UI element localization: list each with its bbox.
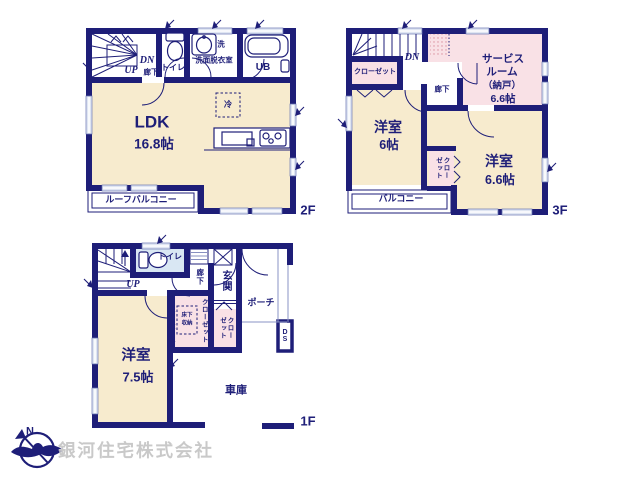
toilet-icon	[166, 33, 184, 41]
service-room-label-2: ルーム	[486, 67, 517, 78]
kitchen-counter	[204, 128, 290, 150]
compass-icon	[11, 429, 63, 467]
service-room-label-3: （納戸）	[483, 81, 521, 91]
stairs-up-label-2f: UP	[124, 66, 137, 76]
room-label-bedroom2-3f: 洋室	[485, 154, 513, 168]
porch-label: ポーチ	[247, 299, 274, 308]
closet2-label-3f-col2: ゼット	[434, 157, 441, 180]
compass-north-label: N	[26, 427, 34, 438]
toilet-label-1f: トイレ	[158, 253, 182, 261]
hallway-label-2f: 廊下	[144, 68, 159, 76]
duct-space-label: DS	[282, 329, 289, 343]
washer-label: 洗	[217, 40, 225, 48]
floor-plan-1f	[84, 235, 294, 429]
service-room-label-1: サービス	[482, 54, 524, 65]
underfloor-label-1: 床下	[181, 313, 192, 319]
company-watermark: 銀河住宅株式会社	[58, 442, 214, 460]
hallway-label-1f: 廊下	[196, 269, 204, 286]
toilet-icon	[139, 252, 148, 268]
service-room-size: 6.6帖	[490, 94, 515, 105]
stairs-down-label-3f: DN	[405, 53, 419, 63]
entrance-label: 玄関	[220, 270, 230, 292]
closet2-label-1f-col2: ゼット	[218, 317, 225, 340]
room-size-ldk: 16.8帖	[134, 137, 174, 151]
washroom-label: 洗面脱衣室	[195, 56, 233, 64]
floor-plan-3f	[338, 20, 556, 215]
room-size-bedroom-1f: 7.5帖	[122, 371, 153, 384]
room-size-bedroom1-3f: 6帖	[379, 139, 398, 152]
balcony-label-3f: バルコニー	[379, 195, 424, 204]
floor-plan-2f	[83, 20, 304, 214]
room-label-bedroom1-3f: 洋室	[374, 120, 402, 134]
room-label-ldk: LDK	[135, 114, 170, 131]
fridge-label: 冷	[224, 101, 232, 109]
room-size-bedroom2-3f: 6.6帖	[485, 174, 515, 187]
closet-label-3f: クローゼット	[354, 69, 396, 76]
hallway-label-3f: 廊下	[435, 85, 450, 93]
floor-label-1f: 1F	[300, 415, 315, 428]
garage-label: 車庫	[225, 386, 247, 397]
bath-label: UB	[256, 63, 270, 73]
stairs-down-label-2f: DN	[140, 56, 154, 66]
floorplan-page: UP DN 廊下 トイレ 洗面脱衣室 洗 UB 冷 LDK 16.8帖 ルーフバ…	[0, 0, 640, 480]
closet2-label-3f: クロー ゼット	[434, 157, 448, 180]
stairs-up-label-1f: UP	[126, 280, 139, 290]
closet2-label-1f: クロー ゼット	[218, 317, 232, 340]
closet1-label-1f: クローゼット	[200, 299, 207, 344]
roof-balcony-label: ルーフバルコニー	[105, 196, 176, 205]
closet2-label-1f-col1: クロー	[226, 317, 233, 340]
underfloor-label-2: 収納	[181, 321, 192, 327]
floorplan-canvas	[0, 0, 640, 480]
room-label-bedroom-1f: 洋室	[122, 349, 151, 364]
closet2-label-3f-col1: クロー	[442, 157, 449, 180]
floor-label-2f: 2F	[300, 204, 315, 217]
toilet-label-2f: トイレ	[161, 64, 185, 72]
floor-label-3f: 3F	[552, 204, 567, 217]
